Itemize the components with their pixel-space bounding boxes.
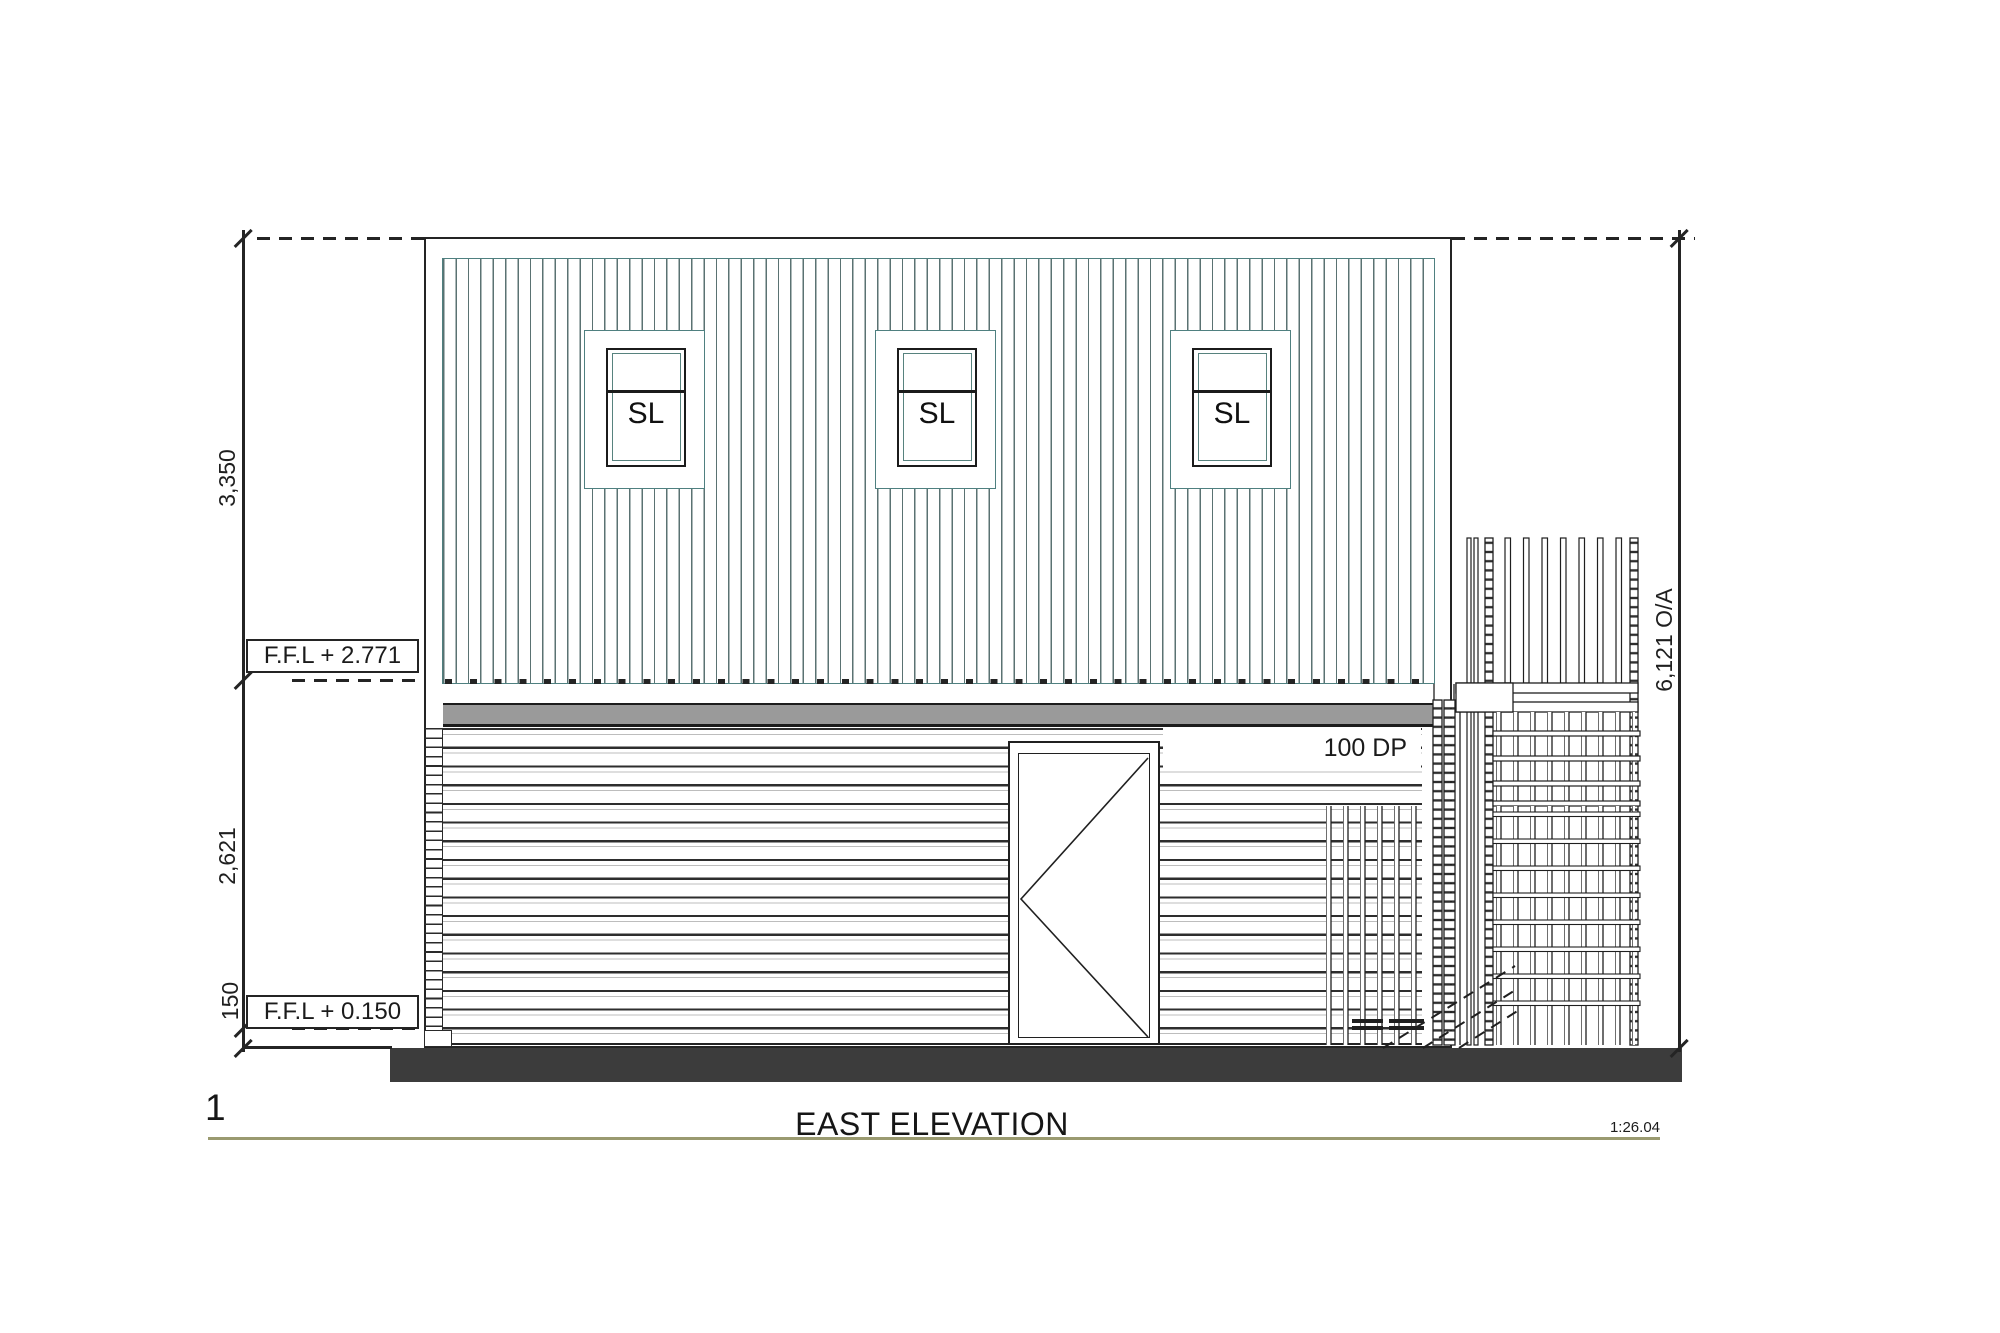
window-2-label: SL [899,399,975,429]
ground-ffl-label: F.F.L + 0.150 [246,995,419,1029]
window-1: SL [584,330,705,489]
title-underline [208,1137,1660,1140]
window-3-sash-divider [1194,390,1270,393]
left-balustrade [1318,806,1425,1045]
drawing-scale: 1:26.04 [1560,1120,1660,1136]
window-1-label: SL [608,399,684,429]
lattice-screen [1493,712,1640,806]
drawing-number: 1 [205,1088,265,1128]
dim-plinth: 150 [218,936,242,1066]
right-dimension-line [1678,230,1681,1052]
window-2-sash-divider [899,390,975,393]
corner-base-step [424,1030,452,1047]
window-2-frame: SL [897,348,977,467]
upper-ffl-label: F.F.L + 2.771 [246,639,419,673]
cladding-base-ticks [445,679,1433,684]
dim-lower-storey: 2,621 [215,791,239,921]
roof-extent-dashed-right [1452,237,1695,240]
window-1-sash-divider [608,390,684,393]
dim-upper-storey: 3,350 [215,413,239,543]
ground-slab [390,1048,1682,1082]
mid-floor-band [443,703,1433,727]
lower-weatherboard-cladding [443,728,1422,1045]
ground-line [243,1046,392,1049]
window-3: SL [1170,330,1291,489]
fence-pickets [1505,538,1622,683]
dim-overall: 6,121 O/A [1652,575,1678,705]
door-swing-icon [1008,741,1160,1045]
stair-screen-grid [1493,806,1640,1045]
fence-stair-screen [1290,530,1700,1050]
corner-downpipe-post [1433,684,1455,1045]
roof-extent-dashed-left [257,237,424,240]
window-1-frame: SL [606,348,686,467]
fence-rails [1456,683,1638,712]
left-dimension-line [242,230,245,1052]
upper-ffl-dashed [292,679,422,682]
corner-trim-strip [424,728,443,1045]
window-3-label: SL [1194,399,1270,429]
elevation-drawing-sheet: 100 DP SL SL SL [0,0,2000,1333]
window-3-frame: SL [1192,348,1272,467]
window-2: SL [875,330,996,489]
